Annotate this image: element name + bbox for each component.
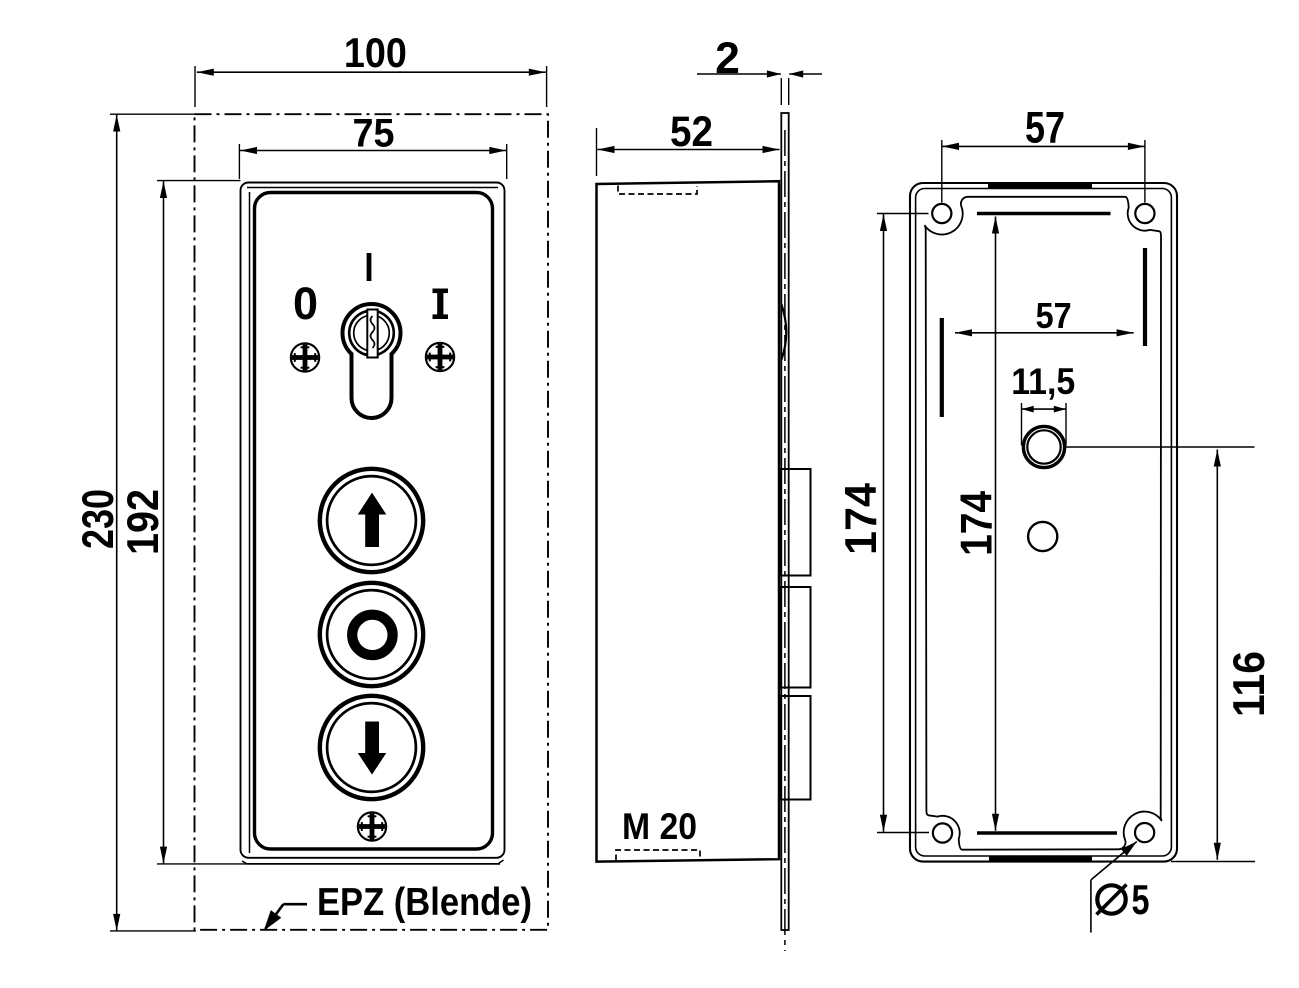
svg-text:0: 0 <box>293 278 318 329</box>
svg-text:75: 75 <box>353 111 395 155</box>
svg-text:116: 116 <box>1225 651 1274 717</box>
svg-text:5: 5 <box>1132 876 1150 923</box>
svg-text:M 20: M 20 <box>622 806 697 847</box>
svg-text:57: 57 <box>1025 103 1065 152</box>
svg-text:174: 174 <box>837 483 886 555</box>
svg-text:2: 2 <box>715 34 740 83</box>
svg-text:230: 230 <box>74 489 123 549</box>
svg-text:11,5: 11,5 <box>1011 361 1075 402</box>
svg-text:174: 174 <box>953 491 1002 556</box>
svg-text:192: 192 <box>119 489 168 555</box>
svg-text:EPZ (Blende): EPZ (Blende) <box>317 881 532 924</box>
svg-text:100: 100 <box>344 29 407 76</box>
svg-text:57: 57 <box>1036 295 1072 336</box>
